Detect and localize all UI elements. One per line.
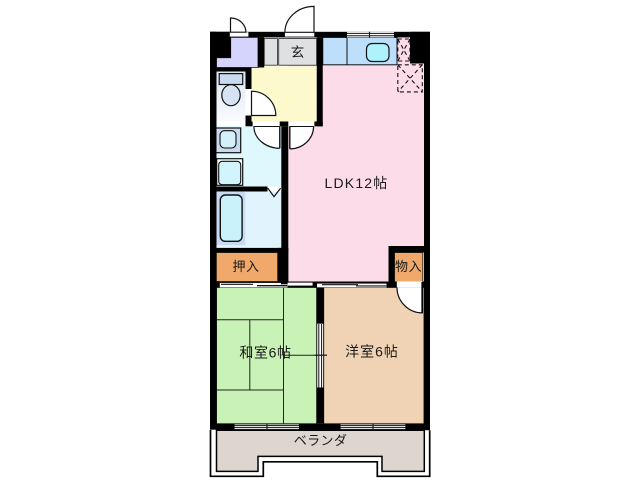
svg-text:LDK12帖: LDK12帖 xyxy=(324,175,388,191)
svg-text:ベランダ: ベランダ xyxy=(294,433,348,448)
svg-text:和室6帖: 和室6帖 xyxy=(239,345,291,361)
svg-text:物入: 物入 xyxy=(395,259,422,274)
svg-text:玄: 玄 xyxy=(291,44,305,60)
svg-text:押入: 押入 xyxy=(232,259,259,274)
svg-text:洋室6帖: 洋室6帖 xyxy=(345,344,399,360)
